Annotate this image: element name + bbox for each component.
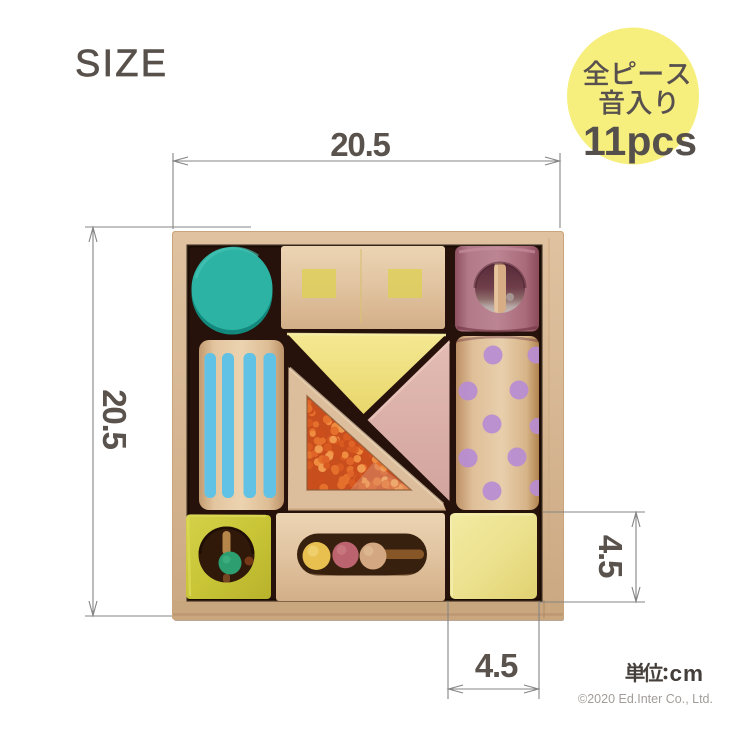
svg-text:©2020 Ed.Inter Co., Ltd.: ©2020 Ed.Inter Co., Ltd. bbox=[578, 692, 713, 706]
svg-text:4.5: 4.5 bbox=[475, 647, 518, 684]
svg-text:11pcs: 11pcs bbox=[583, 118, 697, 164]
svg-text:SIZE: SIZE bbox=[75, 43, 168, 85]
svg-text:20.5: 20.5 bbox=[96, 389, 133, 449]
svg-text:cm: cm bbox=[670, 661, 705, 686]
svg-text:20.5: 20.5 bbox=[330, 126, 390, 163]
svg-text:4.5: 4.5 bbox=[592, 535, 629, 578]
